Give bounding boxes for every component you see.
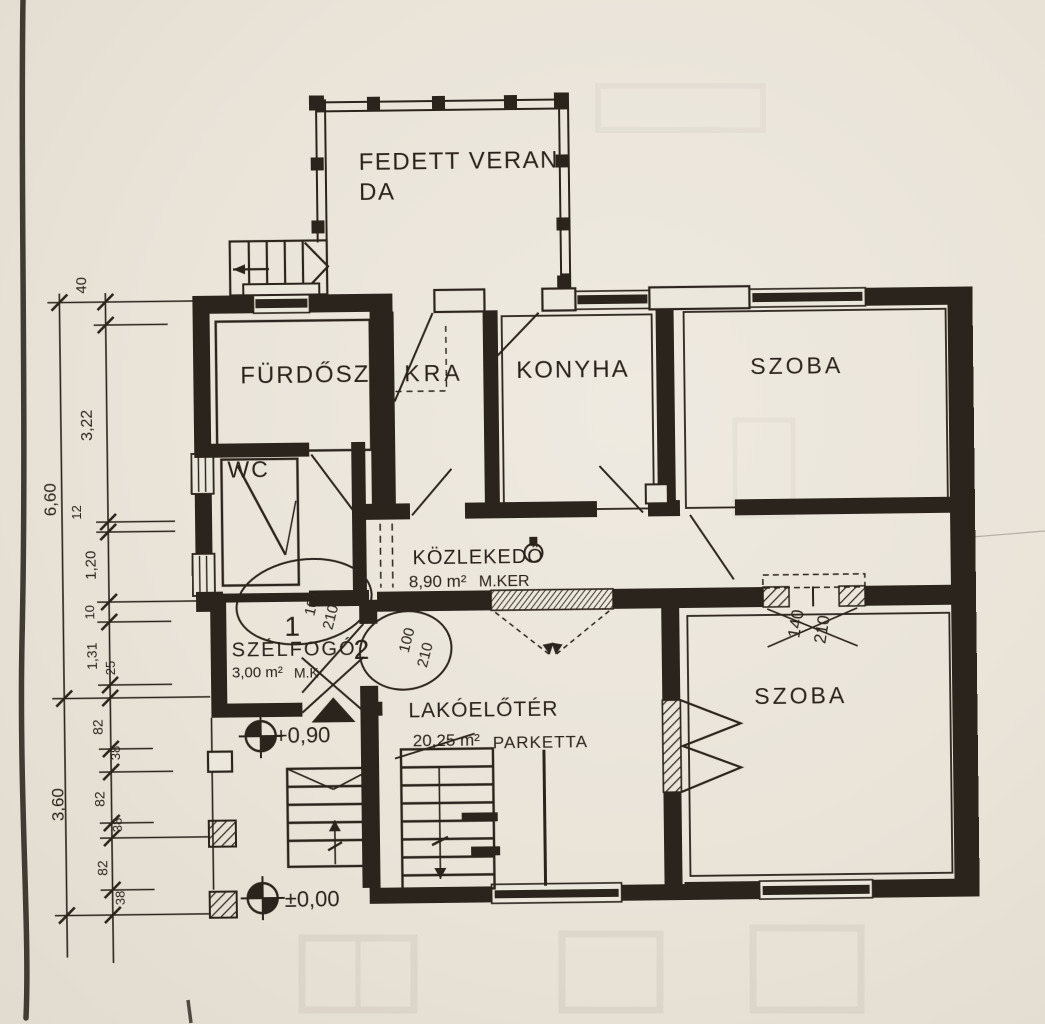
dim-value: 1,20 [82, 551, 99, 580]
door2-width: 100 [396, 626, 419, 654]
level-marker-ground-icon [240, 876, 285, 921]
door-140-width: 140 [784, 608, 807, 639]
dim-value: 10 [82, 605, 97, 620]
window-kitchen [575, 290, 649, 309]
door1-height: 210 [320, 603, 343, 631]
dimension-chains: 40 3,22 12 1,20 10 1,31 25 82 38 82 38 8… [38, 275, 213, 963]
veranda-label-2: DA [359, 178, 396, 205]
windbreak-finish: M.K [294, 664, 320, 680]
foyer-finish: PARKETTA [493, 732, 588, 752]
window-foyer [492, 883, 622, 904]
window-room-bottom [760, 880, 873, 899]
floor-plan-drawing: FEDETT VERAN- DA [0, 0, 1045, 1024]
entry-arrow-icon [311, 697, 355, 723]
dim-value-outer: 6,60 [41, 483, 60, 516]
terrace [207, 718, 236, 918]
dim-value: 12 [69, 505, 84, 520]
room-label-pantry: KRA [404, 360, 464, 387]
dim-value: 38 [110, 818, 125, 833]
interior-stair [401, 748, 546, 890]
bleed-through-ghosts [302, 86, 861, 1010]
windbreak-area: 3,00 m² [232, 664, 283, 682]
veranda: FEDETT VERAN- DA [309, 92, 571, 294]
window-wc-left [191, 454, 213, 494]
dim-value: 3,22 [79, 410, 96, 441]
window-room-top [749, 288, 865, 307]
dim-value: 38 [108, 746, 123, 761]
hall-finish: M.KER [479, 573, 530, 591]
door1-number: 1 [284, 611, 300, 642]
foyer-area: 20,25 m² [413, 731, 481, 751]
room-label-room-top: SZOBA [750, 352, 843, 379]
room-label-foyer: LAKÓELŐTÉR [408, 698, 558, 723]
dim-value: 82 [94, 860, 110, 876]
room-label-hall: KÖZLEKEDŐ [412, 545, 544, 570]
window-bathroom [243, 283, 319, 313]
dim-value: 38 [113, 891, 128, 906]
dim-value: 40 [73, 277, 90, 294]
door2-height: 210 [414, 641, 437, 669]
dim-value: 82 [91, 791, 107, 807]
scanned-floor-plan: FEDETT VERAN- DA [0, 0, 1045, 1024]
room-label-kitchen: KONYHA [516, 356, 630, 384]
veranda-label: FEDETT VERAN- [359, 146, 569, 176]
level-ground: ±0,00 [285, 886, 340, 912]
dim-value: 1,31 [84, 642, 100, 670]
dim-value: 25 [103, 661, 118, 676]
level-terrace: +0,90 [275, 722, 331, 748]
dim-value: 82 [90, 719, 106, 735]
door2-number: 2 [353, 634, 369, 665]
veranda-posts [309, 92, 571, 291]
room-label-bathroom: FÜRDŐSZ. [240, 361, 379, 390]
sliding-door [491, 589, 614, 655]
hall-area: 8,90 m² [409, 572, 467, 592]
room-label-room-bottom: SZOBA [754, 682, 847, 709]
room-label-wc: WC [227, 456, 270, 483]
pillar [210, 891, 237, 917]
dim-value-outer: 3,60 [48, 788, 67, 821]
double-door-140: 140 210 [763, 574, 866, 647]
window-windbreak-left [192, 554, 215, 596]
door-140-height: 210 [810, 614, 833, 645]
pillar [209, 820, 236, 846]
